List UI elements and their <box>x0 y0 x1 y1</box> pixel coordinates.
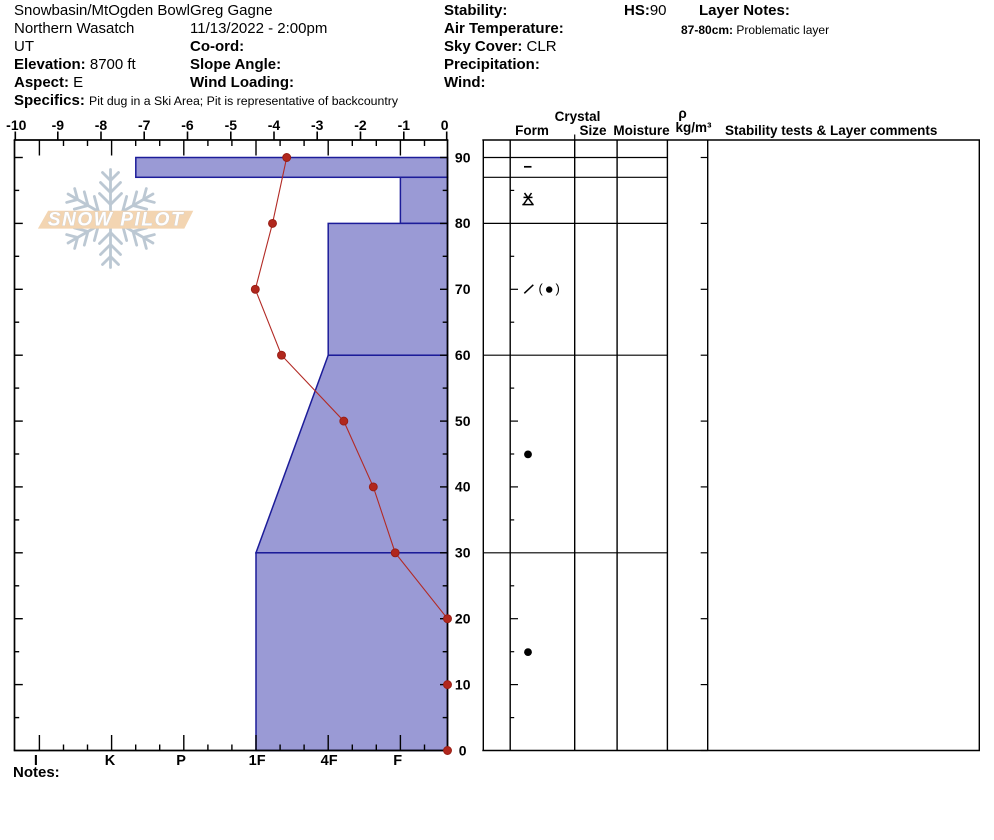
svg-text:10: 10 <box>455 676 471 692</box>
svg-text:-9: -9 <box>52 117 65 133</box>
svg-text:-1: -1 <box>398 117 411 133</box>
svg-text:F: F <box>393 753 402 769</box>
svg-text:kg/m³: kg/m³ <box>675 120 712 135</box>
svg-text:30: 30 <box>455 545 471 561</box>
svg-text:50: 50 <box>455 413 471 429</box>
svg-text:Moisture: Moisture <box>613 123 670 138</box>
svg-text:-5: -5 <box>225 117 238 133</box>
svg-text:0: 0 <box>441 117 449 133</box>
svg-text:-6: -6 <box>181 117 194 133</box>
svg-text:Crystal: Crystal <box>555 109 601 124</box>
svg-text:-10: -10 <box>6 117 26 133</box>
svg-text:(: ( <box>539 281 544 296</box>
svg-text:80: 80 <box>455 215 471 231</box>
svg-text:1F: 1F <box>249 753 266 769</box>
svg-text:0: 0 <box>459 742 467 758</box>
svg-text:70: 70 <box>455 281 471 297</box>
svg-text:60: 60 <box>455 347 471 363</box>
svg-text:40: 40 <box>455 479 471 495</box>
svg-text:-4: -4 <box>268 117 281 133</box>
svg-text:Size: Size <box>579 123 607 138</box>
svg-text:20: 20 <box>455 611 471 627</box>
svg-text:P: P <box>176 753 186 769</box>
svg-text:90: 90 <box>455 149 471 165</box>
svg-text:-8: -8 <box>95 117 108 133</box>
svg-text:4F: 4F <box>321 753 338 769</box>
svg-text:-2: -2 <box>354 117 367 133</box>
svg-text:Form: Form <box>515 123 549 138</box>
svg-text:): ) <box>556 281 560 296</box>
svg-text:SNOW PILOT: SNOW PILOT <box>48 210 184 231</box>
svg-text:I: I <box>34 753 38 769</box>
svg-text:ρ: ρ <box>678 106 686 121</box>
svg-text:-7: -7 <box>138 117 151 133</box>
svg-text:Stability tests & Layer commen: Stability tests & Layer comments <box>725 123 937 138</box>
svg-text:K: K <box>105 753 116 769</box>
svg-text:-3: -3 <box>311 117 324 133</box>
